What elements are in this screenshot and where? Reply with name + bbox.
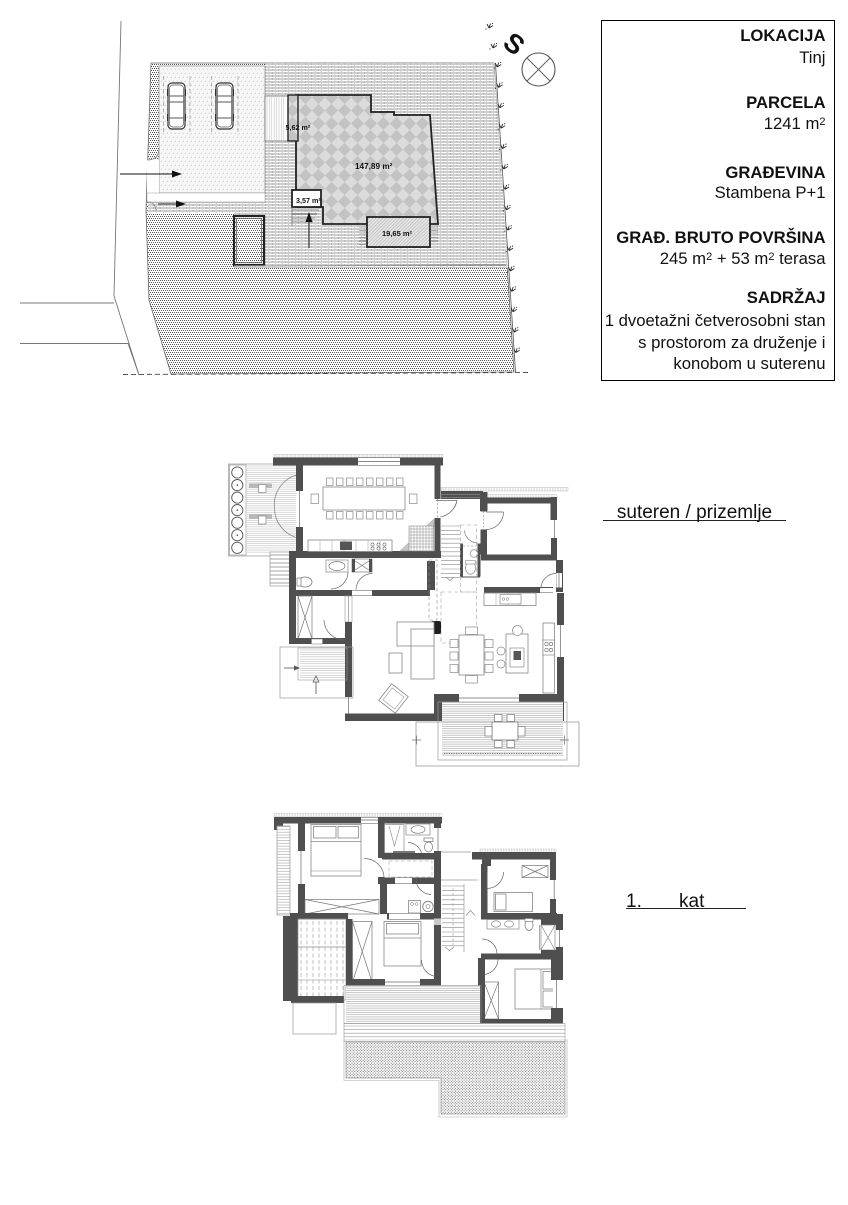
svg-text:S: S [498, 27, 531, 62]
svg-text:3,57 m²: 3,57 m² [296, 196, 321, 205]
svg-text:147,89 m²: 147,89 m² [355, 162, 393, 171]
svg-text:5,62 m²: 5,62 m² [286, 123, 311, 132]
svg-text:19,65 m²: 19,65 m² [382, 229, 413, 238]
